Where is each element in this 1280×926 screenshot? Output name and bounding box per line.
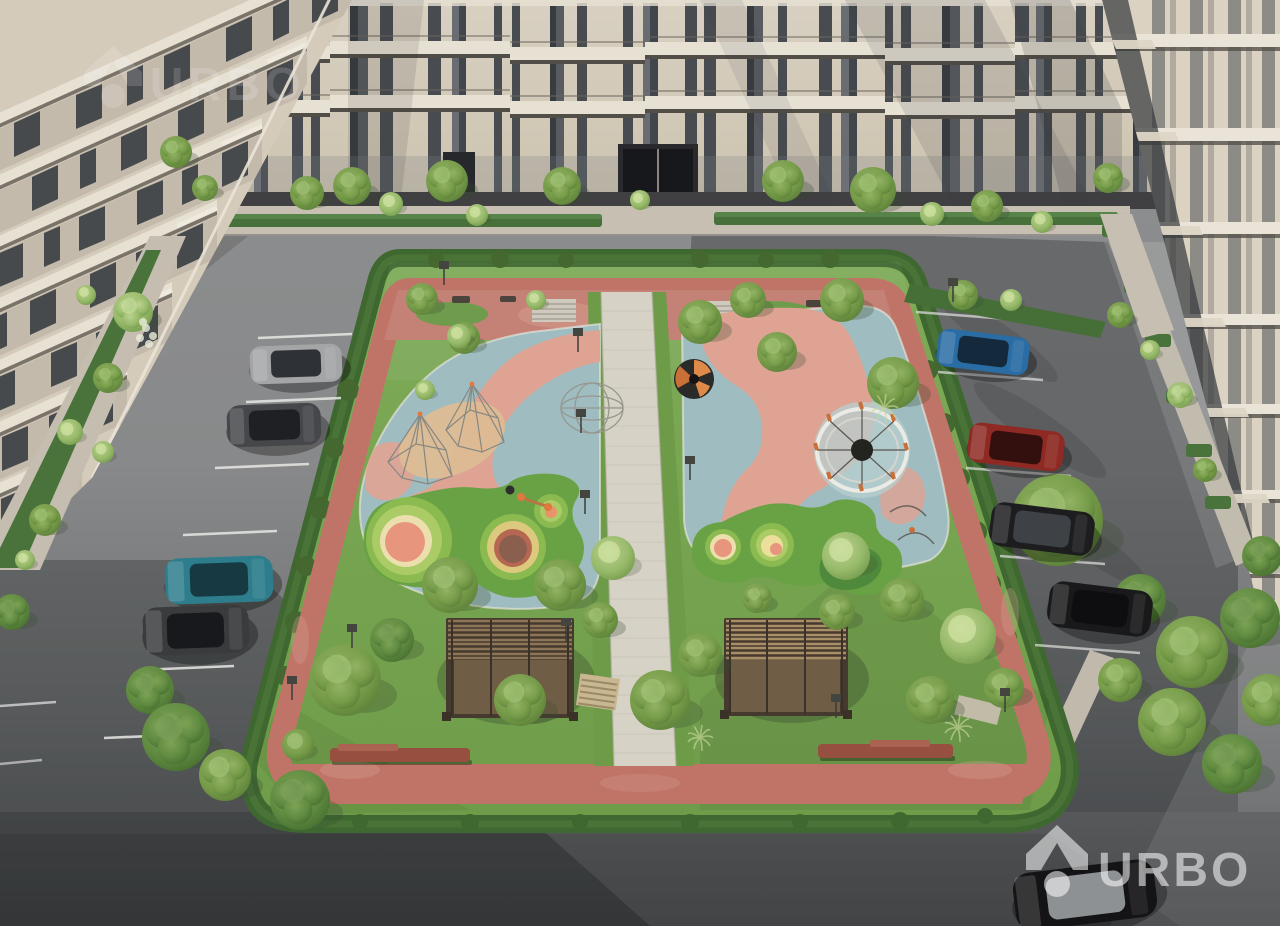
svg-text:URBO: URBO bbox=[1098, 844, 1251, 897]
svg-text:URBO: URBO bbox=[150, 58, 305, 110]
